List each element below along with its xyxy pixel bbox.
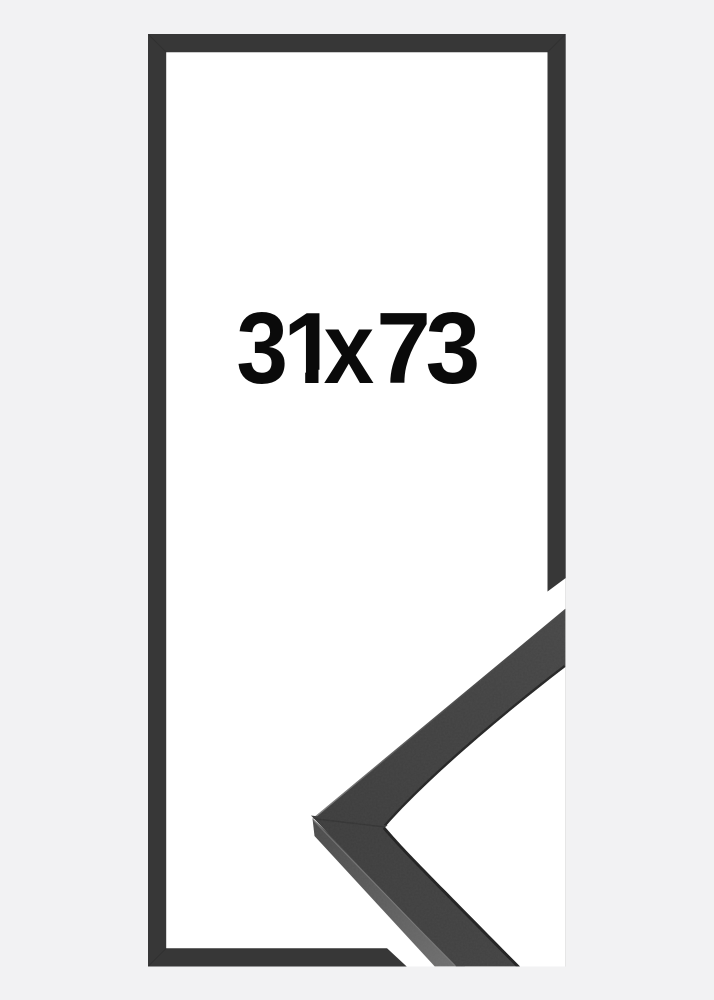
svg-text:3: 3 xyxy=(236,291,288,405)
svg-text:3: 3 xyxy=(426,293,481,406)
svg-text:x: x xyxy=(324,292,374,405)
svg-text:7: 7 xyxy=(376,293,431,406)
